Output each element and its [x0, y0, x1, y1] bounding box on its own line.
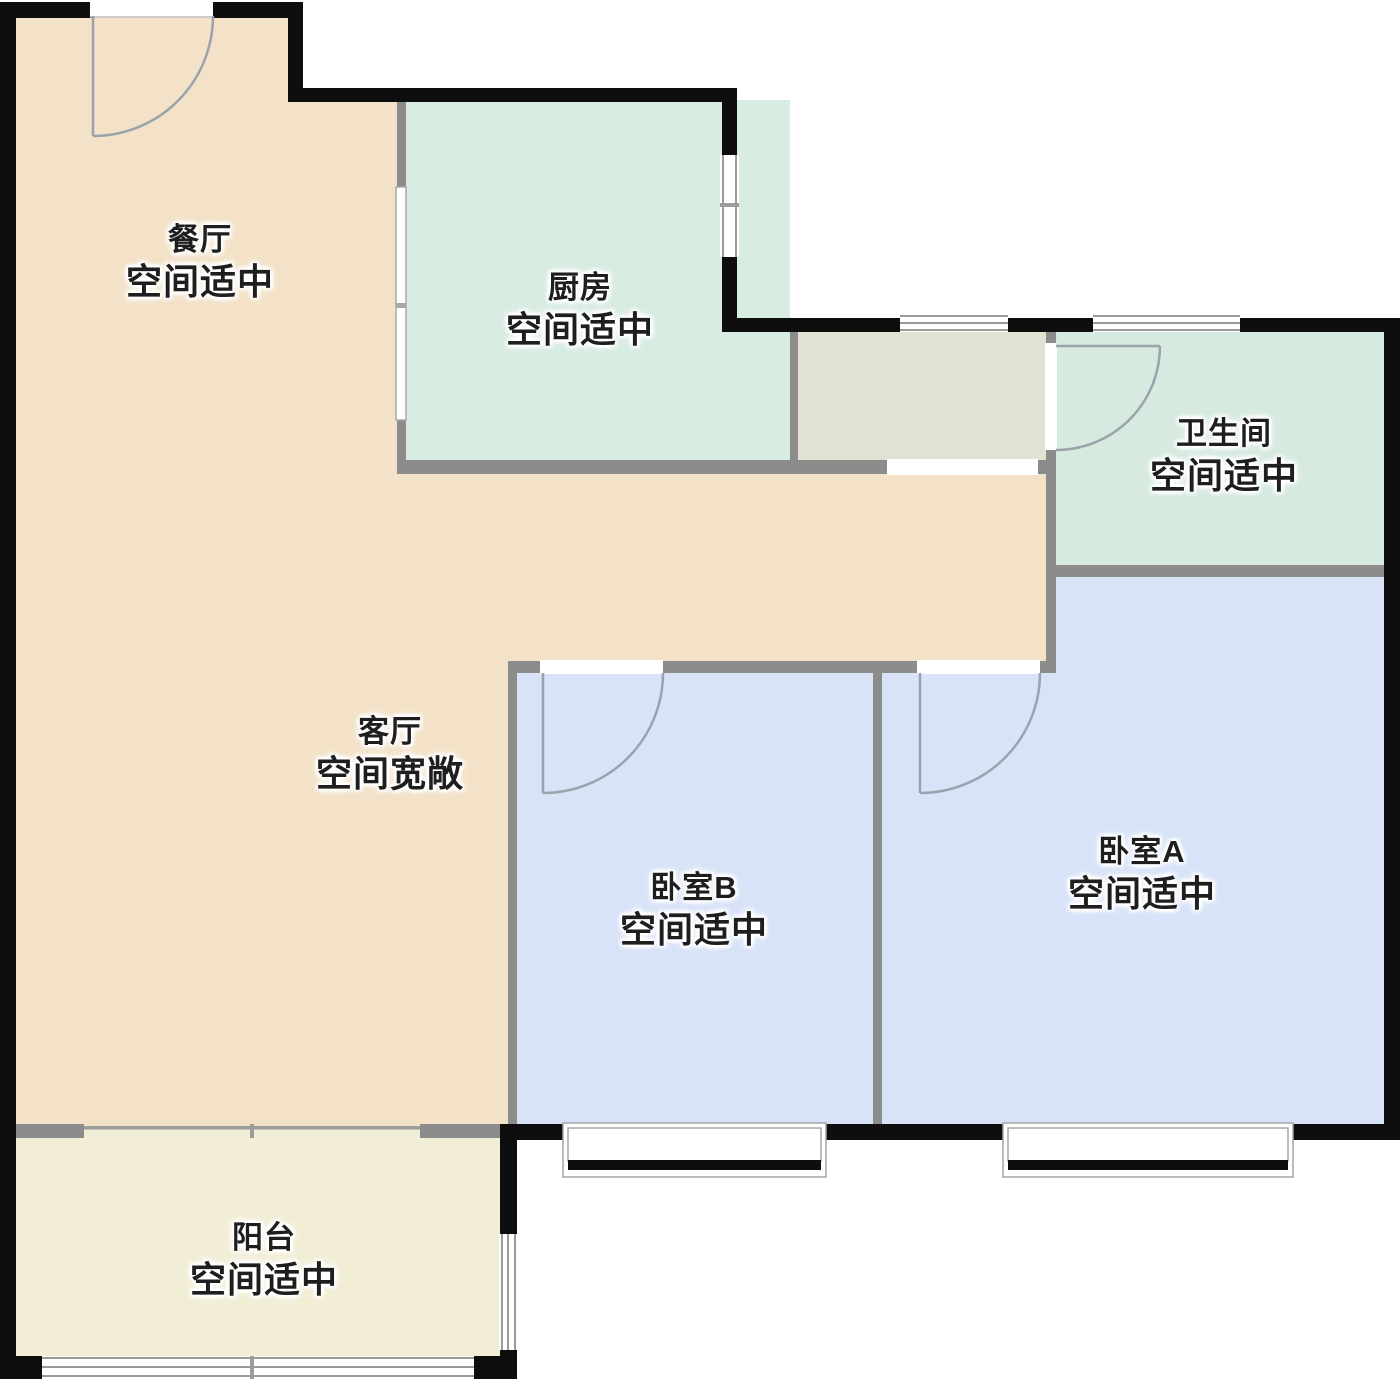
wall-segment — [397, 100, 406, 187]
wall-right — [1384, 318, 1400, 1140]
wall-balcony-bottom-corner — [474, 1356, 517, 1379]
room-name: 厨房 — [506, 268, 654, 308]
bay-window-sill — [1008, 1160, 1288, 1170]
room-name: 卫生间 — [1150, 414, 1298, 454]
wall-segment — [397, 420, 406, 462]
label-bathroom: 卫生间 空间适中 — [1150, 414, 1298, 497]
room-name: 餐厅 — [126, 220, 274, 260]
label-bedroom-b: 卧室B 空间适中 — [620, 868, 768, 951]
room-note: 空间宽敞 — [316, 752, 464, 795]
bay-window-pane — [1008, 1128, 1288, 1161]
wall-north — [1240, 318, 1386, 332]
wall-segment — [790, 330, 798, 472]
door-opening — [540, 660, 663, 674]
label-balcony: 阳台 空间适中 — [190, 1218, 338, 1301]
kitchen-pass-window — [396, 187, 406, 420]
room-note: 空间适中 — [620, 908, 768, 951]
room-name: 阳台 — [190, 1218, 338, 1258]
hallway-opening — [887, 459, 1038, 475]
wall-balcony-right — [500, 1124, 517, 1234]
entry-floor — [790, 330, 1056, 472]
label-dining: 餐厅 空间适中 — [126, 220, 274, 303]
room-name: 客厅 — [316, 712, 464, 752]
balcony-front-window — [42, 1356, 474, 1379]
bay-window-sill — [568, 1160, 821, 1170]
room-name: 卧室A — [1068, 832, 1216, 872]
bedroom-b-bay-window — [563, 1123, 826, 1177]
room-note: 空间适中 — [506, 308, 654, 351]
room-note: 空间适中 — [1068, 872, 1216, 915]
hallway-floor — [399, 460, 1046, 673]
wall-segment — [420, 1124, 500, 1138]
room-note: 空间适中 — [190, 1258, 338, 1301]
wall-step — [288, 2, 303, 102]
wall-segment — [16, 1124, 84, 1138]
door-opening — [917, 660, 1040, 674]
label-kitchen: 厨房 空间适中 — [506, 268, 654, 351]
wall-segment — [397, 460, 887, 474]
wall-segment — [1046, 450, 1056, 577]
wall-segment — [1046, 565, 1386, 577]
bedroom-a-floor — [873, 661, 1056, 1126]
wall-kitchen-top — [288, 88, 737, 102]
floor-plan-canvas — [0, 0, 1400, 1379]
room-note: 空间适中 — [126, 260, 274, 303]
label-living: 客厅 空间宽敞 — [316, 712, 464, 795]
wall-north — [722, 318, 900, 332]
wall-segment — [1046, 330, 1056, 345]
wall-segment — [1040, 661, 1056, 673]
wall-left — [0, 2, 16, 1379]
window-tick — [250, 1356, 254, 1379]
window-tick — [720, 203, 739, 207]
bathroom-north-window — [1093, 314, 1240, 332]
window-tick — [396, 303, 406, 308]
wall-segment — [508, 661, 517, 1126]
room-name: 卧室B — [620, 868, 768, 908]
room-note: 空间适中 — [1150, 454, 1298, 497]
sliding-door-tick — [250, 1124, 254, 1138]
wall-balcony-bottom-corner — [0, 1356, 42, 1379]
door-opening — [1045, 343, 1057, 450]
door-opening — [90, 2, 213, 17]
kitchen-window — [720, 155, 739, 257]
floor-plan: 餐厅 空间适中 厨房 空间适中 卫生间 空间适中 客厅 空间宽敞 卧室B 空间适… — [0, 0, 1400, 1379]
wall-kitchen-right — [722, 88, 737, 155]
bay-window-pane — [568, 1128, 821, 1161]
wall-segment — [1046, 577, 1056, 673]
entry-north-window — [900, 314, 1008, 332]
bedroom-a-bay-window — [1003, 1123, 1293, 1177]
dining-living-floor — [14, 14, 289, 1126]
wall-segment — [873, 661, 882, 1126]
label-bedroom-a: 卧室A 空间适中 — [1068, 832, 1216, 915]
wall-north — [1008, 318, 1093, 332]
balcony-side-window — [499, 1234, 518, 1350]
wall-top — [0, 2, 95, 18]
